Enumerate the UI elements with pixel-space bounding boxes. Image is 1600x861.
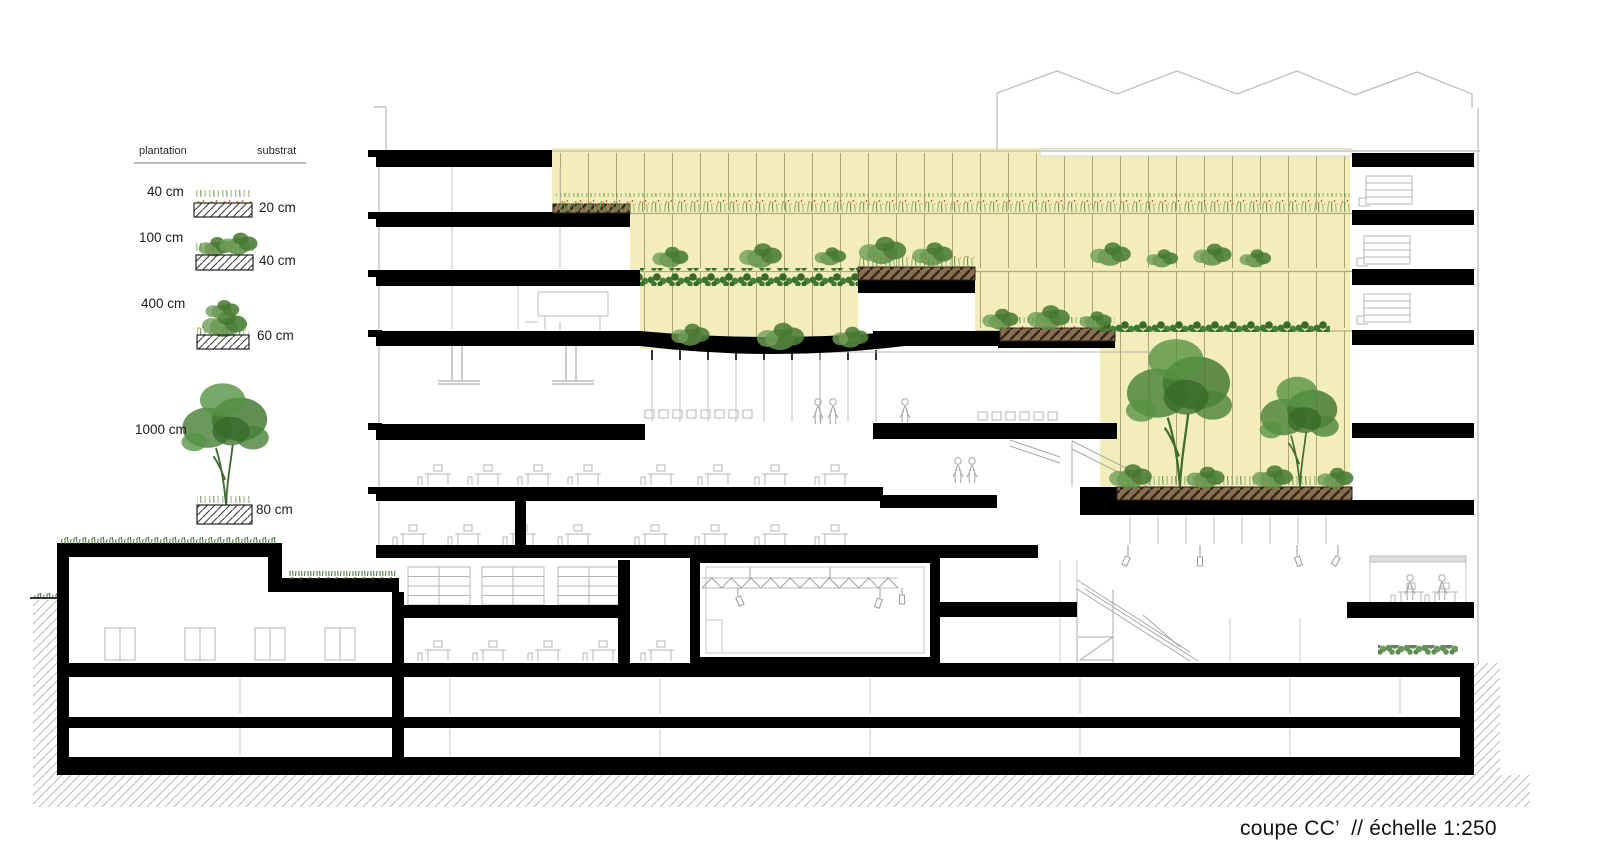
legend-graphics <box>134 163 306 524</box>
legend-tree-graphic <box>181 383 268 505</box>
legend-grass-graphic <box>194 190 252 203</box>
sawtooth-roofline <box>997 71 1472 150</box>
legend-plantation-100: 100 cm <box>139 231 183 245</box>
drawing-caption: coupe CC’ // échelle 1:250 <box>1240 818 1520 839</box>
green-roof <box>60 536 276 544</box>
legend-substrat-60: 60 cm <box>257 329 294 343</box>
legend-header-plantation: plantation <box>139 146 187 157</box>
glazing-top-band <box>1040 149 1352 156</box>
legend-substrat-80: 80 cm <box>256 503 293 517</box>
legend-substrate-box-20 <box>194 203 252 217</box>
legend-plantation-400: 400 cm <box>141 297 185 311</box>
pendant-lamp <box>438 346 594 384</box>
legend-substrat-20: 20 cm <box>259 201 296 215</box>
legend-substrat-40: 40 cm <box>259 254 296 268</box>
section-sheet: plantation substrat 40 cm 20 cm 100 cm 4… <box>0 0 1600 861</box>
legend-substrate-box-60 <box>197 335 249 349</box>
legend-plantation-1000: 1000 cm <box>135 423 187 437</box>
legend-plantation-40: 40 cm <box>147 185 184 199</box>
auditorium <box>695 558 935 662</box>
hedge <box>640 268 858 286</box>
building-section-drawing <box>0 0 1600 861</box>
legend-substrate-box-80 <box>197 505 252 524</box>
legend-header-substrat: substrat <box>257 146 296 157</box>
legend-substrate-box-40 <box>196 255 253 270</box>
spotlights <box>1122 545 1340 566</box>
grass-strip <box>556 193 1350 212</box>
creeper-hedge <box>1100 320 1330 332</box>
window-band <box>1370 556 1466 562</box>
